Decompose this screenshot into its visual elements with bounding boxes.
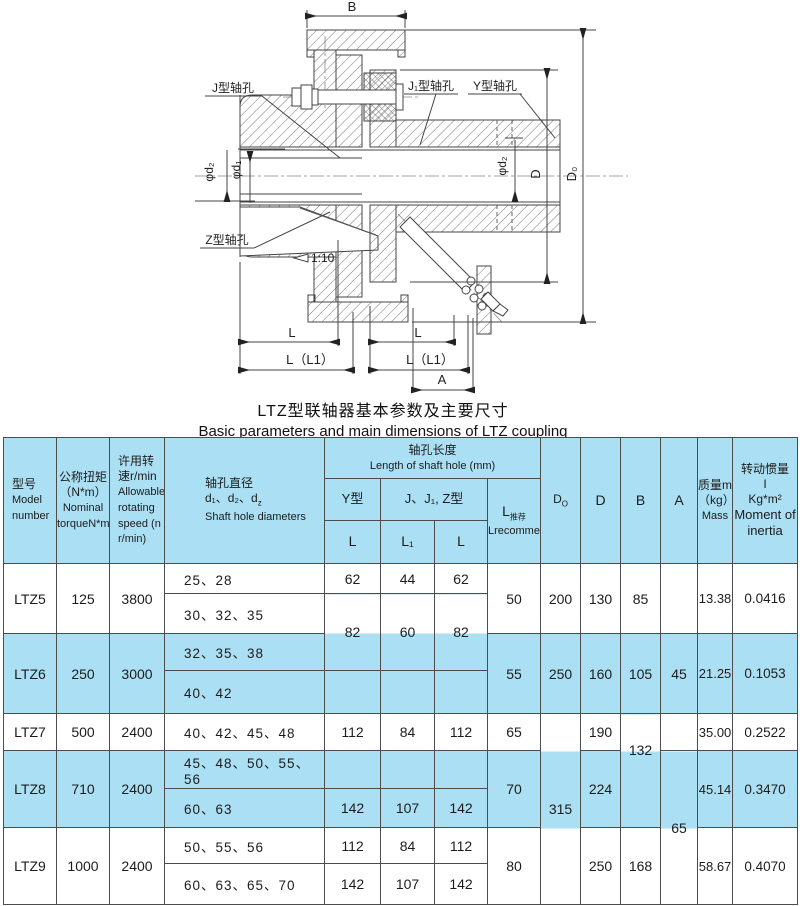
ltz6-mass-cell: 21.25	[698, 634, 733, 714]
ltz6-A-cell: 45	[661, 634, 698, 714]
header-D0-main: D	[553, 492, 562, 506]
ltz9-inertia-cell: 0.4070	[733, 828, 798, 905]
ltz7-torque-cell: 500	[57, 714, 110, 751]
header-inertia: 转动惯量 I Kg*m² Moment of inertia	[733, 438, 798, 564]
dim-L-right-label: L	[414, 325, 421, 340]
header-mass-en: Mass	[702, 510, 728, 522]
ltz8-model-cell: LTZ8	[4, 751, 57, 828]
header-dia-zh: 轴孔直径	[205, 476, 253, 490]
shared-D0-315: 315	[541, 714, 581, 905]
shared-L1-60: 60	[381, 594, 435, 671]
taper-label: 1:10	[311, 251, 335, 265]
header-model: 型号 Model number	[4, 438, 57, 564]
ltz5-D0-cell: 200	[541, 564, 581, 634]
header-torque-zh: 公称扭矩	[59, 470, 107, 484]
header-inertia-sym: I	[763, 477, 766, 491]
dim-LL1-left-label: L（L1）	[286, 352, 334, 367]
header-len-en: Length of shaft hole (mm)	[370, 460, 495, 472]
ltz5-D-cell: 130	[581, 564, 621, 634]
ltz5-L1-1: 44	[381, 564, 435, 594]
ltz9-LZ-1: 112	[435, 828, 488, 864]
ltz8-D-cell: 224	[581, 751, 621, 828]
header-torque-en: Nominal torqueN*m	[57, 502, 110, 530]
ltz5-inertia-cell: 0.0416	[733, 564, 798, 634]
ltz6-inertia-cell: 0.1053	[733, 634, 798, 714]
phi-d2-right-label: φd₂	[495, 156, 509, 175]
header-inertia-unit: Kg*m²	[748, 492, 781, 506]
ltz5-torque-cell: 125	[57, 564, 110, 634]
ltz8-speed-cell: 2400	[110, 751, 165, 828]
ltz6-B-cell: 105	[621, 634, 661, 714]
ltz9-speed-cell: 2400	[110, 828, 165, 905]
phi-d2-left-label: φd₂	[202, 162, 216, 181]
header-A: A	[661, 438, 698, 564]
ltz5-B-cell: 85	[621, 564, 661, 634]
ltz8-torque-cell: 710	[57, 751, 110, 828]
figure-title: LTZ型联轴器基本参数及主要尺寸 Basic parameters and ma…	[0, 397, 766, 440]
j1-hole-label: J₁型轴孔	[408, 78, 454, 93]
ltz5-model-cell: LTZ5	[4, 564, 57, 634]
dim-A-label: A	[438, 372, 447, 387]
ltz7-LZ-1: 112	[435, 714, 488, 751]
ltz9-holes-2: 60、63、65、70	[165, 864, 325, 905]
ltz8-L1-2: 107	[381, 789, 435, 828]
ltz6-holes-2: 40、42	[165, 671, 325, 714]
ltz9-L1-1: 84	[381, 828, 435, 864]
ltz6-speed-cell: 3000	[110, 634, 165, 714]
ltz8-L1-1	[381, 751, 435, 789]
phi-d1-label: φd₁	[229, 161, 243, 180]
ltz9-L1-2: 107	[381, 864, 435, 905]
ltz9-Lrec-cell: 80	[488, 828, 541, 905]
ltz5-holes-2: 30、32、35	[165, 594, 325, 634]
ltz8-Lrec-cell: 70	[488, 751, 541, 828]
ltz7-Lrec-cell: 65	[488, 714, 541, 751]
header-Lrec-main: L	[502, 503, 510, 519]
ltz8-inertia-cell: 0.3470	[733, 751, 798, 828]
ltz5-holes-1: 25、28	[165, 564, 325, 594]
ltz7-A-cell	[661, 714, 698, 751]
ltz9-mass-cell: 58.67	[698, 828, 733, 905]
ltz7-inertia-cell: 0.2522	[733, 714, 798, 751]
header-Lrec: L推荐 Lrecommend	[488, 479, 541, 564]
header-model-zh: 型号	[12, 477, 36, 491]
ltz9-torque-cell: 1000	[57, 828, 110, 905]
shared-B-132-value: 132	[621, 742, 660, 758]
shared-LZ-82: 82	[435, 594, 488, 671]
ltz8-L-1	[325, 751, 381, 789]
ltz7-speed-cell: 2400	[110, 714, 165, 751]
header-dia-en: Shaft hole diameters	[205, 511, 306, 523]
header-speed: 许用转速r/min Allowable rotating speed (n r/…	[110, 438, 165, 564]
ltz9-D-cell: 250	[581, 828, 621, 905]
ltz7-L1-1: 84	[381, 714, 435, 751]
header-torque: 公称扭矩 （N*m） Nominal torqueN*m	[57, 438, 110, 564]
ltz6-holes-1: 32、35、38	[165, 634, 325, 671]
ltz7-D-cell: 190	[581, 714, 621, 751]
j-hole-label: J型轴孔	[212, 80, 254, 95]
header-D0-sub: O	[562, 499, 568, 508]
dim-phi-d	[195, 138, 523, 203]
ltz6-Lrec-cell: 55	[488, 634, 541, 714]
ltz9-model-cell: LTZ9	[4, 828, 57, 905]
header-dia-symbols: d₁、d₂、d	[205, 491, 258, 505]
ltz8-LZ-1	[435, 751, 488, 789]
header-Y-L: L	[325, 521, 381, 564]
header-dia-sub: z	[258, 499, 262, 508]
shared-A-65: 65	[661, 751, 698, 905]
ltz5-A-cell	[661, 564, 698, 634]
header-diameters: 轴孔直径 d₁、d₂、dz Shaft hole diameters	[165, 438, 325, 564]
ltz6-D0-cell: 250	[541, 634, 581, 714]
header-JJ1Z-type: J、J₁, Z型	[381, 479, 488, 521]
ltz5-LZ-1: 62	[435, 564, 488, 594]
title-zh: LTZ型联轴器基本参数及主要尺寸	[0, 397, 766, 421]
ltz5-L-1: 62	[325, 564, 381, 594]
ltz8-holes-2: 60、63	[165, 789, 325, 828]
header-Lrec-sub: 推荐	[510, 513, 526, 522]
ltz9-holes-1: 50、55、56	[165, 828, 325, 864]
ltz6-LZ-2	[435, 671, 488, 714]
header-B: B	[621, 438, 661, 564]
ltz8-holes-1: 45、48、50、55、56	[165, 751, 325, 789]
ltz7-model-cell: LTZ7	[4, 714, 57, 751]
header-Lrec-en: Lrecommend	[488, 525, 541, 537]
ltz6-model-cell: LTZ6	[4, 634, 57, 714]
dim-D-label: D	[528, 169, 543, 178]
ltz6-torque-cell: 250	[57, 634, 110, 714]
header-D0: DO	[541, 438, 581, 564]
coupling-cross-section-drawing: B J型轴孔 J₁型轴孔 Y型轴孔 Z型轴孔 1:10 φd₂ φd₁ φd₂ …	[0, 0, 800, 396]
header-mass-zh: 质量m	[698, 478, 732, 492]
ltz5-mass-cell: 13.38	[698, 564, 733, 634]
header-len-zh: 轴孔长度	[409, 443, 457, 457]
ltz7-L-1: 112	[325, 714, 381, 751]
ltz6-D-cell: 160	[581, 634, 621, 714]
catalog-page: B J型轴孔 J₁型轴孔 Y型轴孔 Z型轴孔 1:10 φd₂ φd₁ φd₂ …	[0, 0, 800, 906]
ltz5-Lrec-cell: 50	[488, 564, 541, 634]
header-torque-unit: （N*m）	[59, 485, 106, 499]
header-D: D	[581, 438, 621, 564]
header-L1: L₁	[381, 521, 435, 564]
ltz6-L-2	[325, 671, 381, 714]
y-hole-label: Y型轴孔	[473, 78, 517, 93]
ltz7-mass-cell: 35.00	[698, 714, 733, 751]
ltz8-L-2: 142	[325, 789, 381, 828]
shared-L-82: 82	[325, 594, 381, 671]
ltz6-L1-2	[381, 671, 435, 714]
header-model-en: Model number	[12, 494, 49, 522]
ltz5-speed-cell: 3800	[110, 564, 165, 634]
parameters-table: 型号 Model number 公称扭矩 （N*m） Nominal torqu…	[3, 437, 798, 905]
header-speed-en: Allowable rotating speed (n r/min)	[118, 486, 165, 545]
dim-LL1-right-label: L（L1）	[406, 352, 454, 367]
ltz7-holes-1: 40、42、45、48	[165, 714, 325, 751]
ltz9-L-1: 112	[325, 828, 381, 864]
header-shaft-hole-length: 轴孔长度 Length of shaft hole (mm)	[325, 438, 541, 479]
z-hole-label: Z型轴孔	[205, 232, 248, 247]
ltz8-LZ-2: 142	[435, 789, 488, 828]
header-Y-type: Y型	[325, 479, 381, 521]
dim-B-label: B	[348, 0, 357, 14]
header-speed-zh: 许用转速r/min	[118, 454, 157, 483]
header-mass: 质量m （kg） Mass	[698, 438, 733, 564]
header-inertia-zh: 转动惯量	[741, 462, 789, 476]
ltz9-B-cell: 168	[621, 828, 661, 905]
ltz8-mass-cell: 45.14	[698, 751, 733, 828]
dim-L-left-label: L	[288, 325, 295, 340]
header-Z-L: L	[435, 521, 488, 564]
dim-D0-label: D₀	[564, 167, 579, 182]
header-inertia-en: Moment of inertia	[734, 507, 795, 538]
ltz9-LZ-2: 142	[435, 864, 488, 905]
ltz9-L-2: 142	[325, 864, 381, 905]
shared-B-132: 132	[621, 714, 661, 828]
header-mass-unit: （kg）	[698, 493, 733, 507]
